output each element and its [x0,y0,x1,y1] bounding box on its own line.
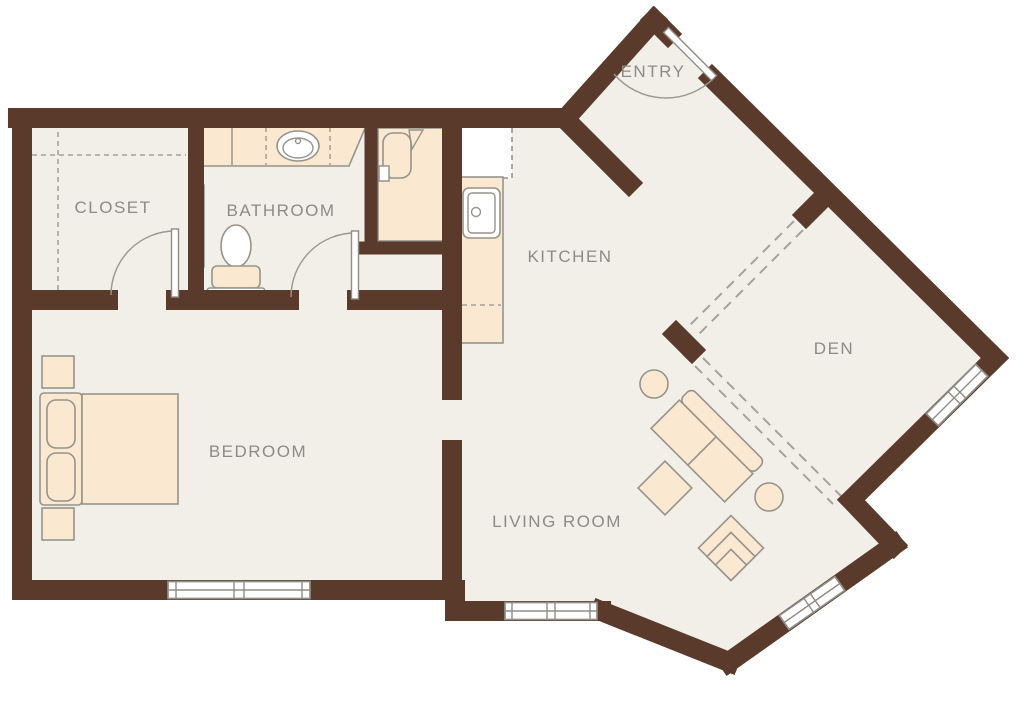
side-table [755,483,783,511]
room-label-closet: CLOSET [74,198,151,217]
floor-plan-page: CLOSET BATHROOM KITCHEN ENTRY DEN BEDROO… [0,0,1027,708]
room-label-entry: ENTRY [621,62,686,81]
shower-tub [378,128,445,241]
room-label-living-room: LIVING ROOM [492,512,622,531]
pillow [47,453,75,501]
nightstand [42,508,74,540]
nightstand [42,356,74,388]
floor-plan-drawing: CLOSET BATHROOM KITCHEN ENTRY DEN BEDROO… [0,0,1027,708]
pillow [47,400,75,448]
room-label-bedroom: BEDROOM [209,442,307,461]
kitchen-counter [460,177,503,343]
refrigerator [459,127,512,178]
room-label-kitchen: KITCHEN [527,247,612,266]
vanity-sink [198,126,366,166]
room-label-bathroom: BATHROOM [227,201,336,220]
room-label-den: DEN [814,339,854,358]
bedroom-window [168,582,310,599]
side-table [640,370,668,398]
living-room-window [505,603,597,620]
